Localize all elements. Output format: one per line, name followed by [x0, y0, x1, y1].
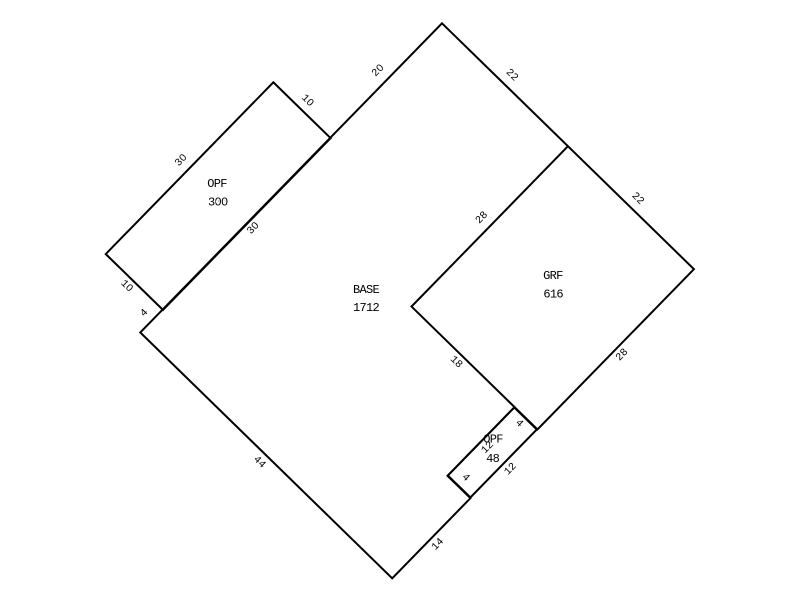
svg-text:4: 4 [138, 307, 151, 320]
svg-text:4: 4 [512, 417, 525, 430]
svg-text:10: 10 [298, 92, 315, 109]
svg-text:4: 4 [459, 472, 472, 485]
svg-text:616: 616 [543, 288, 563, 302]
svg-text:22: 22 [503, 67, 520, 84]
svg-text:20: 20 [370, 62, 387, 79]
svg-text:44: 44 [250, 454, 267, 471]
svg-text:28: 28 [474, 209, 491, 226]
svg-text:30: 30 [173, 152, 190, 169]
svg-text:GRF: GRF [543, 269, 563, 283]
svg-text:OPF: OPF [207, 177, 227, 191]
svg-text:1712: 1712 [353, 301, 380, 315]
svg-text:22: 22 [629, 190, 646, 207]
svg-text:BASE: BASE [353, 283, 380, 297]
